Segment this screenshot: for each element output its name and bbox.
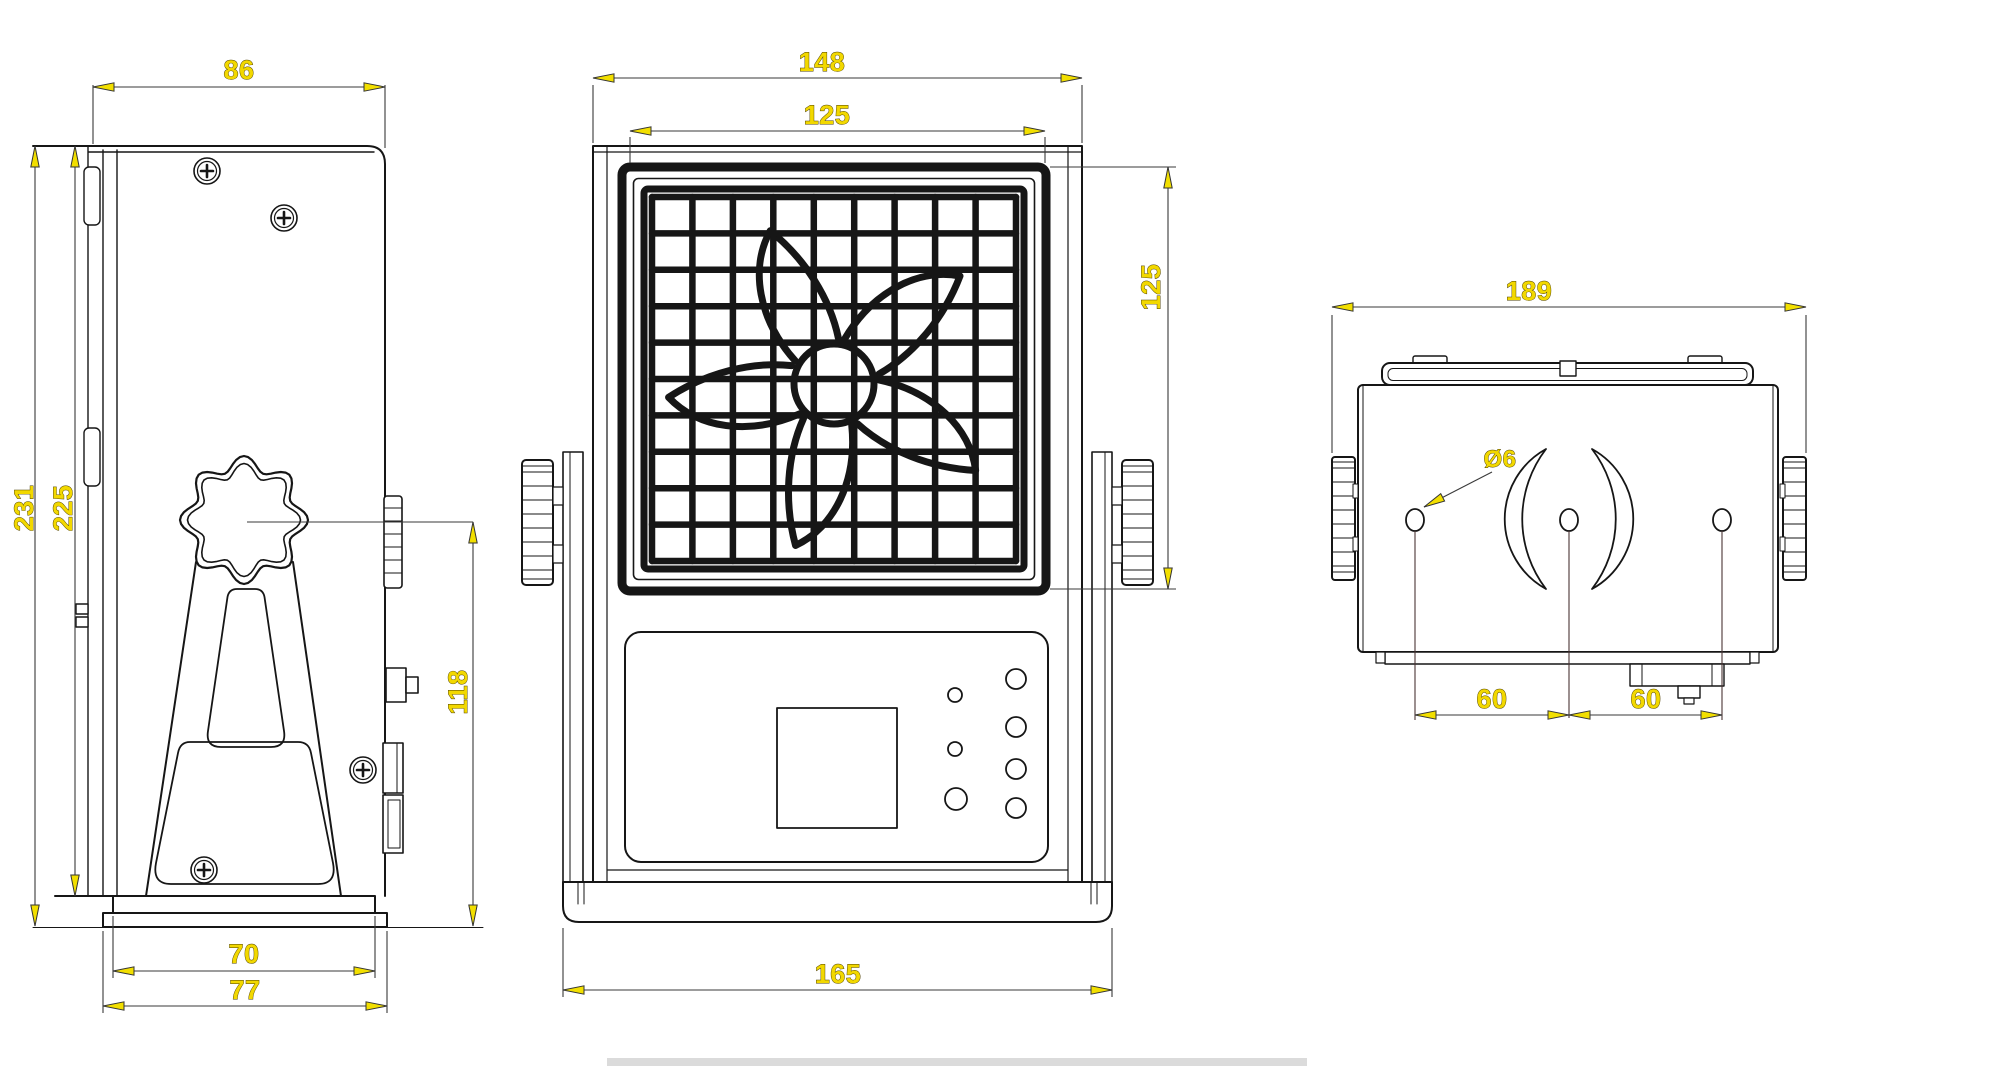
panel-button — [945, 788, 967, 810]
dim-label-front-base-width: 165 — [815, 959, 862, 989]
yoke-legs — [146, 562, 341, 896]
base-plate-side — [55, 896, 387, 927]
mounting-hole-left — [1406, 509, 1424, 531]
knob-tab — [1780, 484, 1785, 498]
knob-tab — [1112, 545, 1122, 563]
knob-tab — [553, 487, 563, 505]
dim-label-foot-width: 70 — [228, 939, 259, 969]
mounting-hole-right — [1713, 509, 1731, 531]
panel-button — [1006, 798, 1026, 818]
bottom-tab — [1376, 652, 1385, 663]
fan-grille — [622, 167, 1046, 591]
dim-label-grille-width: 125 — [804, 100, 851, 130]
side-connector — [383, 743, 403, 793]
dim-label-overall-width: 148 — [799, 47, 846, 77]
knurled-knob-left — [522, 460, 553, 585]
indicator-led — [948, 688, 962, 702]
side-stub — [76, 604, 88, 614]
knurled-knob-left-top — [1332, 457, 1355, 580]
knurled-knob-right — [1122, 460, 1153, 585]
dim-label-base-width: 77 — [229, 975, 260, 1005]
base-plate-front — [563, 882, 1112, 922]
yoke-upper-cutout — [208, 589, 285, 747]
mounting-hole-center — [1560, 509, 1578, 531]
side-view: 86 231 225 118 70 77 — [9, 55, 483, 1013]
dim-label-overall-height: 231 — [9, 485, 39, 532]
panel-button — [1006, 717, 1026, 737]
connector-nub — [1684, 698, 1694, 704]
yoke-arm-right — [1092, 452, 1112, 882]
side-button — [386, 668, 406, 702]
panel-button — [1006, 669, 1026, 689]
yoke-arm-left — [563, 452, 583, 882]
dim-label-hole-spacing-right: 60 — [1630, 684, 1661, 714]
knob-tab — [553, 545, 563, 563]
knob-tab — [1353, 537, 1358, 551]
dim-label-top-overall-width: 189 — [1506, 276, 1553, 306]
connector-stub — [1678, 686, 1700, 698]
center-clip — [1560, 361, 1576, 376]
side-knob-edge — [384, 496, 402, 588]
drawing-svg: 86 231 225 118 70 77 — [0, 0, 2000, 1066]
dim-label-grille-height: 125 — [1136, 264, 1166, 311]
rail-clip — [84, 167, 100, 225]
dim-label-body-height: 225 — [48, 485, 78, 532]
yoke-lower-cutout — [155, 742, 333, 884]
top-view: 189 Ø6 60 60 — [1332, 276, 1806, 720]
side-button-stub — [406, 677, 418, 693]
control-panel — [625, 632, 1048, 862]
knob-tab — [1353, 484, 1358, 498]
dim-label-hole-spacing-left: 60 — [1476, 684, 1507, 714]
connector-block-top — [1630, 664, 1724, 686]
rail-clip — [84, 428, 100, 486]
indicator-led — [948, 742, 962, 756]
bottom-edge-artifact — [607, 1058, 1307, 1066]
knurled-knob-right-top — [1783, 457, 1806, 580]
panel-button — [1006, 759, 1026, 779]
knob-tab — [1112, 487, 1122, 505]
dim-label-hole-diameter: Ø6 — [1483, 446, 1516, 473]
dim-label-knob-to-base: 118 — [443, 669, 473, 714]
side-stub — [76, 617, 88, 627]
bracket-knob-outline — [180, 456, 308, 584]
technical-drawing-canvas: 86 231 225 118 70 77 — [0, 0, 2000, 1066]
knob-tab — [1780, 537, 1785, 551]
front-view: 148 125 125 165 — [522, 47, 1176, 997]
bottom-plate-top — [1385, 652, 1750, 664]
bottom-tab — [1750, 652, 1759, 663]
dim-label-top-width: 86 — [223, 55, 254, 85]
